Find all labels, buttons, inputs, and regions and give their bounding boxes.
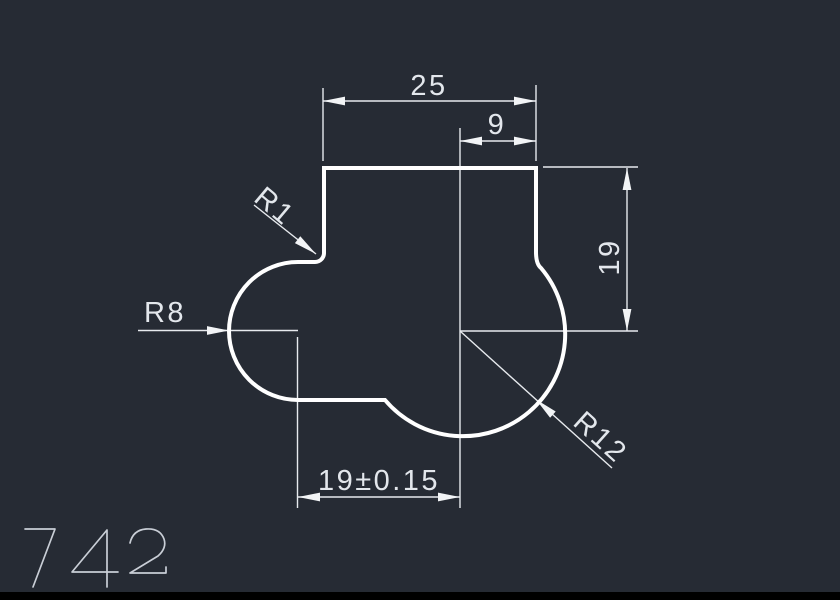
dim-label-19: 19 — [594, 238, 626, 275]
cad-viewport: 25 9 19 19±0.15 R8 R1 R12 — [0, 0, 840, 600]
cad-canvas: 25 9 19 19±0.15 R8 R1 R12 — [0, 0, 840, 600]
dim-label-9: 9 — [488, 109, 507, 141]
radius-label-r8: R8 — [144, 297, 186, 329]
dim-label-25: 25 — [410, 70, 447, 102]
dim-label-19-tol: 19±0.15 — [318, 465, 440, 497]
footer-bar — [0, 592, 840, 600]
